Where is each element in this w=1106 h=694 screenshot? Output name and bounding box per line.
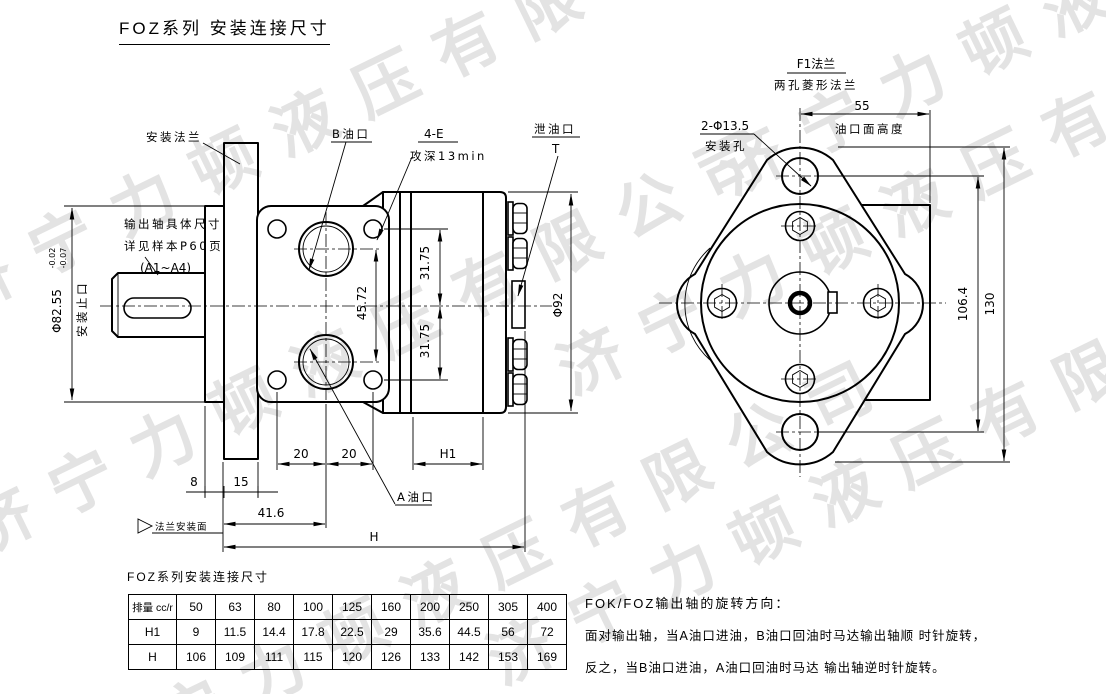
tap-depth-label: 攻深13min — [410, 149, 487, 163]
technical-drawing: Φ82.55 -0.02 -0.07 安装止口 45.72 31.75 31.7… — [0, 0, 1106, 694]
drain-port-label: T — [551, 142, 560, 156]
cell: 200 — [411, 595, 450, 620]
cell: 109 — [216, 645, 255, 670]
dim-hole-spacing-top: 31.75 — [418, 246, 432, 280]
table-row-h1: H1 9 11.5 14.4 17.8 22.5 29 35.6 44.5 56… — [129, 620, 567, 645]
drain-label: 泄油口 — [534, 122, 576, 136]
dim-spigot-dia: Φ82.55 — [50, 289, 64, 333]
notes-heading: FOK/FOZ输出轴的旋转方向： — [585, 593, 790, 612]
cell: 250 — [450, 595, 489, 620]
tap-hole — [268, 220, 286, 238]
dim-hole-spacing-bottom: 31.75 — [418, 324, 432, 358]
cell: 22.5 — [333, 620, 372, 645]
mount-holes-label: 2-Φ13.5 — [701, 119, 749, 133]
datum-triangle-icon — [138, 519, 152, 533]
cell: 305 — [489, 595, 528, 620]
drawing-page: FOZ系列 安装连接尺寸 — [0, 0, 1106, 694]
table-row-displacement: 排量 cc/r 50 63 80 100 125 160 200 250 305… — [129, 595, 567, 620]
mounting-flange — [224, 143, 258, 459]
table-row-h: H 106 109 111 115 120 126 133 142 153 16… — [129, 645, 567, 670]
dim-body-dia: Φ92 — [551, 293, 565, 318]
dim-port-spacing: 45.72 — [355, 286, 369, 320]
shaft-key — [828, 292, 837, 313]
dim-8: 8 — [190, 475, 198, 489]
mounting-flange-label: 安装法兰 — [146, 130, 202, 144]
cell: 120 — [333, 645, 372, 670]
drain-port — [512, 281, 525, 328]
cell: 111 — [255, 645, 294, 670]
dim-offset-right: 20 — [341, 447, 356, 461]
port-b-label: B油口 — [332, 127, 370, 141]
cell: 153 — [489, 645, 528, 670]
shaft-note-line1: 输出轴具体尺寸 — [124, 217, 222, 231]
dimension-table: 排量 cc/r 50 63 80 100 125 160 200 250 305… — [128, 594, 567, 670]
cell: 169 — [528, 645, 567, 670]
cell: 72 — [528, 620, 567, 645]
cell: 80 — [255, 595, 294, 620]
dim-h1: H1 — [440, 447, 457, 461]
cell: 400 — [528, 595, 567, 620]
cell: 56 — [489, 620, 528, 645]
dim-15: 15 — [233, 475, 248, 489]
tap-label: 4-E — [424, 127, 444, 141]
cell: 29 — [372, 620, 411, 645]
shaft-keyway — [124, 298, 191, 318]
notes-line-2: 反之，当B油口进油，A油口回油时马达 输出轴逆时针旋转。 — [585, 657, 946, 676]
mounting-spigot — [205, 206, 224, 402]
cell: 50 — [177, 595, 216, 620]
port-a-label: A油口 — [397, 490, 435, 504]
dim-spigot-tol-lower: -0.07 — [59, 248, 68, 269]
mount-holes-sub-label: 安装孔 — [705, 139, 747, 153]
cell: 63 — [216, 595, 255, 620]
dim-106-4: 106.4 — [956, 287, 970, 321]
dim-55: 55 — [854, 99, 869, 113]
cell: 11.5 — [216, 620, 255, 645]
table-caption: FOZ系列安装连接尺寸 — [127, 568, 269, 585]
cell: 160 — [372, 595, 411, 620]
flange-name-label: F1法兰 — [797, 57, 836, 71]
cell: 125 — [333, 595, 372, 620]
tap-hole — [268, 371, 286, 389]
dim-130: 130 — [983, 293, 997, 316]
side-view-geometry — [112, 143, 527, 459]
row-header-displacement: 排量 cc/r — [129, 595, 177, 620]
dim-spigot-tol-upper: -0.02 — [48, 248, 57, 269]
row-header-h1: H1 — [129, 620, 177, 645]
cell: 100 — [294, 595, 333, 620]
dim-h: H — [369, 530, 378, 544]
cell: 142 — [450, 645, 489, 670]
dim-41-6: 41.6 — [258, 506, 285, 520]
cell: 133 — [411, 645, 450, 670]
front-view-geometry — [677, 148, 930, 465]
shaft-note-line2: 详见样本P60页 — [124, 239, 223, 253]
flange-type-label: 两孔菱形法兰 — [774, 78, 858, 92]
cell: 35.6 — [411, 620, 450, 645]
notes-line-1: 面对输出轴，当A油口进油，B油口回油时马达输出轴顺 时针旋转， — [585, 625, 986, 644]
cell: 126 — [372, 645, 411, 670]
flange-face-label: 法兰安装面 — [155, 521, 208, 533]
dim-offset-left: 20 — [293, 447, 308, 461]
tap-hole — [364, 371, 382, 389]
cell: 106 — [177, 645, 216, 670]
cell: 14.4 — [255, 620, 294, 645]
port-face-height-label: 油口面高度 — [835, 122, 905, 136]
cell: 9 — [177, 620, 216, 645]
cell: 44.5 — [450, 620, 489, 645]
row-header-h: H — [129, 645, 177, 670]
shaft-note-line3: (A1~A4) — [140, 261, 191, 275]
cell: 115 — [294, 645, 333, 670]
cell: 17.8 — [294, 620, 333, 645]
spigot-label: 安装止口 — [75, 281, 89, 337]
